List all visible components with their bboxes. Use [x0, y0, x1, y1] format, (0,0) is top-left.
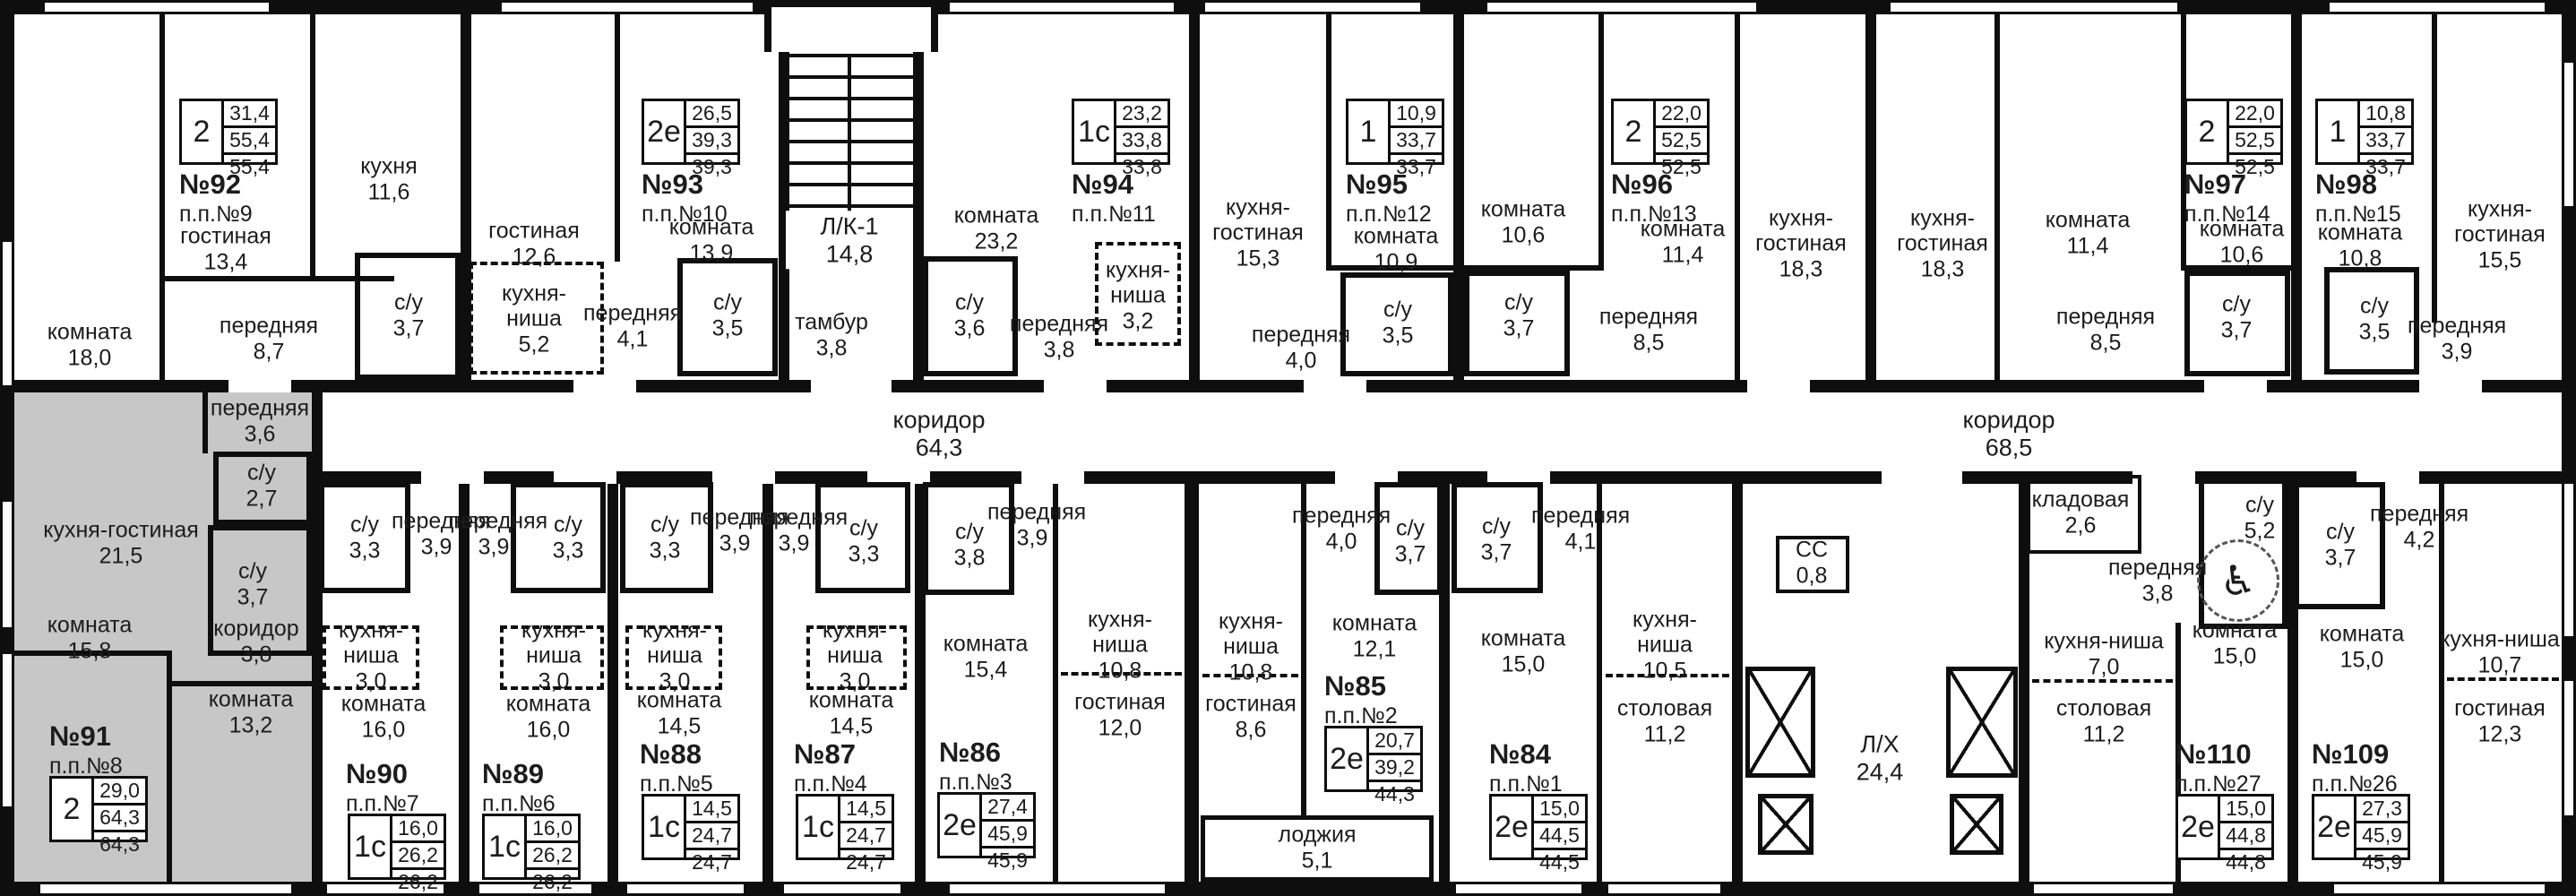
window	[2562, 63, 2576, 206]
apt91-room-koridor: коридор3,8	[202, 616, 310, 668]
apt84-room-komnata: комната15,0	[1460, 626, 1586, 677]
floor-plan: ♿ коридор64,3 коридор68,5 Л/К-114,8 тамб…	[0, 0, 2576, 896]
window	[950, 882, 1165, 896]
apt95-id: №95п.п.№12	[1346, 170, 1432, 226]
apt91-stamp: 229,064,364,3	[49, 776, 148, 842]
apt85-room-kuhnya-nisha: кухня-ниша10,8	[1202, 609, 1300, 685]
apt97-stamp: 222,052,552,5	[2184, 99, 2283, 165]
door-opening	[228, 380, 291, 392]
niche-divider	[2032, 679, 2173, 683]
apt84-id: №84п.п.№1	[1489, 740, 1563, 796]
apt90-room-su: с/у3,3	[329, 513, 401, 564]
wall	[1732, 471, 1743, 882]
apt88-room-komnata: комната14,5	[616, 688, 742, 739]
apt90-room-komnata: комната16,0	[321, 692, 446, 743]
apt97-room-perednyaya: передняя8,5	[2038, 305, 2173, 356]
stairs	[789, 54, 913, 229]
wall	[159, 14, 165, 380]
door-opening	[1304, 380, 1366, 392]
apt89-id: №89п.п.№6	[482, 760, 556, 815]
apt109-id: №109п.п.№26	[2312, 740, 2398, 796]
apt109-room-perednyaya: передняя4,2	[2370, 502, 2468, 553]
window	[0, 654, 14, 806]
elevator-shaft	[1946, 667, 2018, 778]
apt88-stamp: 1с14,524,724,7	[642, 794, 740, 860]
entrance-vestibule	[764, 0, 938, 52]
apt93-stamp: 2е26,539,339,3	[642, 99, 740, 165]
window	[784, 882, 900, 896]
apt86-room-komnata: комната15,4	[926, 632, 1047, 683]
wall	[615, 14, 620, 262]
apt110-room-komnata: комната15,0	[2190, 618, 2279, 669]
elevator-shaft	[1758, 794, 1814, 855]
apt110-room-kladovaya: кладовая2,6	[2018, 487, 2143, 538]
apt95-room-komnata: комната10,9	[1333, 224, 1459, 275]
apt89-stamp: 1с16,026,226,2	[482, 814, 581, 880]
niche-divider	[2447, 677, 2559, 681]
window	[40, 882, 291, 896]
apt91-room-su1: с/у2,7	[224, 461, 300, 512]
apt87-stamp: 1с14,524,724,7	[796, 794, 894, 860]
apt89-room-kuhnya-nisha: кухня-ниша3,0	[504, 618, 604, 694]
window	[1205, 0, 1420, 14]
door-opening	[712, 471, 775, 484]
apt96-room-kuhnya-gostinaya: кухня-гостиная18,3	[1725, 206, 1877, 282]
window	[2562, 681, 2576, 815]
apt95-room-kuhnya-gostinaya: кухня-гостиная15,3	[1186, 195, 1330, 271]
door-opening	[2132, 471, 2195, 484]
apt90-id: №90п.п.№7	[346, 760, 419, 815]
apt90-room-kuhnya-nisha: кухня-ниша3,0	[321, 618, 421, 694]
apt87-room-komnata: комната14,5	[788, 688, 914, 739]
apt91-room-kuhnya-gostinaya: кухня-гостиная21,5	[31, 518, 211, 569]
apt90-stamp: 1с16,026,226,2	[348, 814, 446, 880]
apt98-room-komnata: комната10,8	[2297, 220, 2423, 271]
wall	[14, 380, 2562, 392]
wall	[1598, 14, 1604, 271]
window	[1487, 0, 1756, 14]
apt94-stamp: 1с23,233,833,8	[1072, 99, 1170, 165]
apt86-room-kuhnya-nisha: кухня-ниша10,8	[1070, 607, 1170, 684]
apt88-room-kuhnya-nisha: кухня-ниша3,0	[625, 618, 725, 694]
apt85-room-gostinaya: гостиная8,6	[1202, 692, 1300, 743]
apt92-room-komnata: комната18,0	[27, 320, 152, 371]
apt89-room-komnata: комната16,0	[486, 692, 611, 743]
apt86-room-gostinaya: гостиная12,0	[1071, 690, 1169, 741]
stair-divider	[848, 54, 851, 229]
apt93-room-komnata: комната13,9	[649, 215, 774, 266]
stairwell-label: Л/К-114,8	[786, 211, 913, 269]
apt95-room-perednyaya: передняя4,0	[1247, 323, 1355, 374]
door-opening	[421, 471, 484, 484]
wall	[167, 681, 312, 686]
apt94-room-su: с/у3,6	[929, 290, 1010, 341]
apt85-id: №85п.п.№2	[1324, 672, 1398, 728]
window	[45, 0, 269, 14]
tambour-label: тамбур3,8	[769, 310, 894, 361]
apt96-room-perednyaya: передняя8,5	[1581, 305, 1716, 356]
apt109-room-komnata: комната15,0	[2299, 622, 2425, 673]
apt88-id: №88п.п.№5	[640, 740, 713, 796]
window	[2562, 484, 2576, 636]
door-opening	[2204, 380, 2267, 392]
wall	[607, 471, 618, 882]
apt95-stamp: 110,933,733,7	[1346, 99, 1444, 165]
door-opening	[573, 380, 636, 392]
apt98-room-perednyaya: передняя3,9	[2408, 314, 2506, 365]
door-opening	[811, 380, 892, 392]
wheelchair-icon: ♿	[2197, 539, 2279, 622]
window	[2330, 0, 2545, 14]
apt91-room-komnata2: комната13,2	[188, 687, 314, 738]
wall	[310, 14, 315, 280]
wall	[1865, 14, 1876, 392]
apt91-id: №91п.п.№8	[49, 722, 123, 778]
window	[950, 0, 1174, 14]
apt94-id: №94п.п.№11	[1072, 170, 1156, 226]
apt91-room-su2: с/у3,7	[215, 559, 291, 610]
apt89-room-su: с/у3,3	[532, 513, 604, 564]
apt110-room-perednyaya: передняя3,8	[2108, 556, 2207, 607]
wall	[1735, 14, 1740, 380]
apt86-id: №86п.п.№3	[939, 738, 1012, 794]
apt109-stamp: 2е27,345,945,9	[2312, 794, 2410, 860]
apt97-room-su: с/у3,7	[2196, 292, 2277, 343]
window	[627, 882, 744, 896]
apt94-room-komnata: комната23,2	[929, 203, 1064, 254]
apt95-room-su: с/у3,5	[1357, 297, 1438, 349]
window	[1456, 882, 1581, 896]
apt98-room-su: с/у3,5	[2334, 294, 2415, 345]
wall	[1185, 471, 1199, 882]
window	[0, 242, 14, 385]
apt110-room-stolovaya: столовая11,2	[2041, 696, 2167, 747]
window	[1608, 882, 1720, 896]
apt92-room-perednyaya: передняя8,7	[197, 314, 340, 365]
lift-hall-label: Л/Х24,4	[1826, 730, 1934, 785]
apt87-room-su: с/у3,3	[828, 516, 900, 567]
apt109-room-gostinaya: гостиная12,3	[2442, 696, 2558, 747]
window	[1891, 0, 2177, 14]
apt92-stamp: 231,455,455,4	[179, 99, 278, 165]
apt85-room-su: с/у3,7	[1376, 516, 1444, 567]
apt109-room-kuhnya-nisha: кухня-ниша10,7	[2437, 627, 2563, 678]
door-opening	[1882, 471, 1962, 484]
apt92-room-kuhnya: кухня11,6	[335, 154, 443, 205]
service-shaft-label: СС0,8	[1776, 538, 1848, 589]
apt84-room-su: с/у3,7	[1460, 514, 1532, 565]
apt110-id: №110п.п.№27	[2175, 740, 2262, 796]
apt97-room-komnata1: комната11,4	[2025, 208, 2150, 259]
apt85-room-komnata: комната12,1	[1312, 611, 1437, 662]
apt96-room-su: с/у3,7	[1478, 290, 1559, 341]
apt93-room-gostinaya: гостиная12,6	[471, 219, 597, 270]
apt86-room-perednyaya: передняя3,9	[987, 500, 1077, 551]
apt91-room-komnata1: комната15,8	[27, 613, 152, 664]
apt93-room-perednyaya: передняя4,1	[583, 301, 682, 352]
apt85-stamp: 2е20,739,244,3	[1324, 726, 1423, 792]
elevator-shaft	[1745, 667, 1815, 778]
corridor-right-label: коридор68,5	[1910, 406, 2107, 461]
apt87-room-kuhnya-nisha: кухня-ниша3,0	[805, 618, 905, 694]
apt87-room-perednyaya: передняя3,9	[749, 505, 839, 556]
apt97-room-kuhnya-gostinaya: кухня-гостиная18,3	[1866, 206, 2019, 282]
wall	[2432, 14, 2437, 323]
wall	[1994, 14, 2000, 380]
apt98-stamp: 110,833,733,7	[2315, 99, 2414, 165]
apt109-room-su: с/у3,7	[2305, 520, 2376, 571]
door-opening	[2419, 380, 2482, 392]
elevator-shaft	[1950, 794, 2003, 855]
apt110-room-kuhnya-nisha: кухня-ниша7,0	[2037, 629, 2171, 680]
apt84-room-kuhnya-nisha: кухня-ниша10,5	[1609, 607, 1721, 684]
apt84-room-stolovaya: столовая11,2	[1602, 696, 1727, 747]
loggia-label: лоджия5,1	[1241, 823, 1393, 874]
apt98-room-kuhnya-gostinaya: кухня-гостиная15,5	[2433, 197, 2567, 273]
apt84-stamp: 2е15,044,544,5	[1489, 794, 1588, 860]
apt93-room-kuhnya-nisha: кухня-ниша5,2	[476, 281, 592, 358]
door-opening	[1021, 471, 1084, 484]
window	[0, 502, 14, 627]
apt96-stamp: 222,052,552,5	[1611, 99, 1710, 165]
window	[502, 0, 753, 14]
apt97-room-komnata2: комната10,6	[2179, 217, 2305, 268]
corridor-left-label: коридор64,3	[840, 406, 1038, 461]
window	[2034, 882, 2173, 896]
apt89-room-perednyaya: передняя3,9	[449, 509, 538, 560]
apt92-id: №92п.п.№9	[179, 170, 253, 226]
apt91-room-perednyaya: передняя3,6	[206, 396, 314, 447]
apt92-room-su: с/у3,7	[368, 290, 449, 341]
apt110-room-su: с/у5,2	[2224, 493, 2296, 544]
apt86-stamp: 2е27,445,945,9	[937, 792, 1036, 858]
wall	[2291, 14, 2302, 392]
apt93-room-su: с/у3,5	[687, 290, 768, 341]
apt92-room-gostinaya: гостиная13,4	[163, 224, 289, 275]
apt87-id: №87п.п.№4	[794, 740, 867, 796]
window	[2334, 882, 2545, 896]
apt84-room-perednyaya: передняя4,1	[1531, 504, 1630, 555]
apt96-room-komnata1: комната10,6	[1460, 197, 1586, 248]
door-opening	[1044, 380, 1107, 392]
apt110-stamp: 2е15,044,844,8	[2175, 794, 2274, 860]
door-opening	[1747, 380, 1810, 392]
apt94-room-kuhnya-nisha: кухня-ниша3,2	[1090, 258, 1185, 334]
apt98-id: №98п.п.№15	[2315, 170, 2401, 226]
